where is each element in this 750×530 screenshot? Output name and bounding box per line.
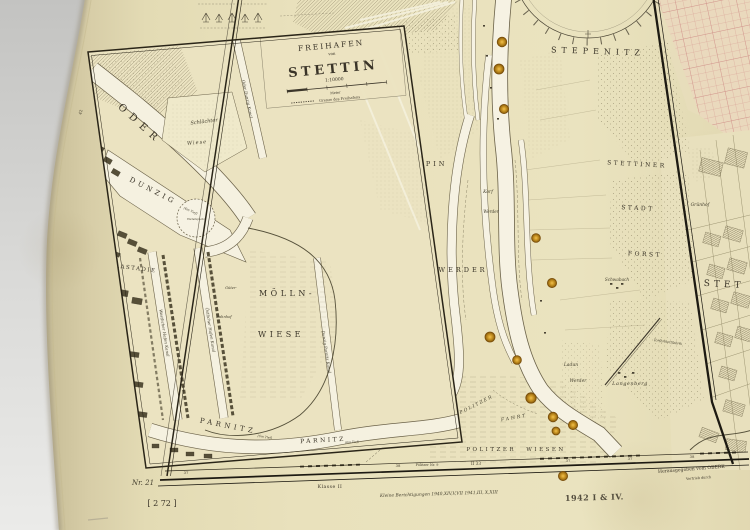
bahnhof-label: Bahnhof: [215, 315, 232, 319]
margin-b2: 38: [396, 463, 401, 468]
date-stamp: 1942 I & IV.: [565, 491, 624, 503]
margin-roman: II 33: [471, 461, 481, 466]
pencil-note: [ 2 72 ]: [147, 499, 176, 508]
ladun-label: Ladun: [563, 362, 578, 368]
klasse-label: Klasse II: [318, 484, 343, 490]
werder-small-label: Werder: [483, 209, 500, 214]
moelln-wiese-label: WIESE: [258, 330, 304, 339]
margin-b3: 37: [566, 458, 571, 463]
margin-b1: 37: [184, 470, 189, 475]
parnitz-east-depth-label: (6m Tief): [345, 440, 360, 445]
sheet-number: Nr. 21: [131, 479, 154, 487]
stettin-partial-label: STET: [703, 279, 744, 291]
inset-content: FREIHAFEN von STETTIN 1:10000 Meter Gren…: [88, 24, 462, 468]
moelln-label: MÖLLN-: [259, 289, 315, 298]
chart-artwork: Grünhof STET: [0, 0, 750, 530]
margin-b5: 38: [690, 454, 695, 459]
gruenhof-label: Grünhof: [691, 202, 711, 208]
photo-of-harbor-chart: Grünhof STET: [0, 0, 750, 530]
margin-b4: 37: [628, 456, 633, 461]
wendeplatz-label: Wendeplatz: [187, 217, 205, 221]
werder-label: WERDER: [438, 266, 487, 274]
korf-label: Korf: [482, 189, 494, 195]
gueter-label: Güter-: [225, 286, 237, 290]
politzer-wiesen-label: POLITZER WIESEN: [466, 447, 565, 453]
langenberg-label: Langenberg: [611, 381, 648, 387]
cartouche-line2: von: [327, 51, 336, 57]
schwabach-label: Schwabach: [605, 277, 630, 282]
margin-politzer-nr: Pölitzer Nr. 9: [416, 463, 439, 467]
inset-freihafen: FREIHAFEN von STETTIN 1:10000 Meter Gren…: [88, 24, 462, 468]
werder-mid-label: Werder: [570, 378, 588, 384]
